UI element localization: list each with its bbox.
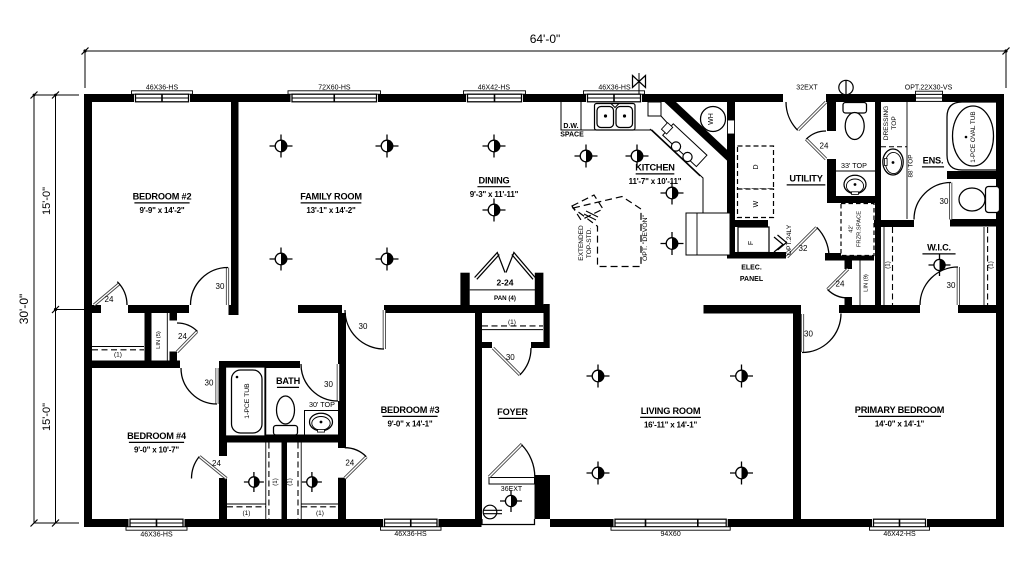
svg-text:TOP-STD.: TOP-STD. [586, 228, 593, 258]
svg-text:32EXT: 32EXT [796, 84, 818, 91]
svg-text:30: 30 [216, 282, 225, 291]
svg-text:88' TOP: 88' TOP [908, 154, 915, 177]
svg-text:64'-0": 64'-0" [530, 32, 561, 46]
svg-text:13'-1" x 14'-2": 13'-1" x 14'-2" [306, 206, 356, 215]
svg-text:9'-3" x 11'-11": 9'-3" x 11'-11" [470, 190, 519, 199]
svg-text:16'-11" x 14'-1": 16'-11" x 14'-1" [644, 421, 698, 430]
svg-text:BEDROOM #4: BEDROOM #4 [127, 431, 187, 441]
svg-text:36EXT: 36EXT [501, 486, 523, 493]
svg-text:OPT. "DEVON": OPT. "DEVON" [642, 214, 649, 261]
svg-text:94X60: 94X60 [660, 531, 680, 538]
svg-text:30: 30 [947, 281, 956, 290]
svg-text:24: 24 [178, 332, 187, 341]
svg-text:SPACE: SPACE [560, 132, 584, 139]
svg-text:UTILITY: UTILITY [789, 174, 822, 184]
svg-text:1-PCE TUB: 1-PCE TUB [244, 383, 251, 419]
svg-text:24: 24 [820, 142, 829, 151]
svg-text:KITCHEN: KITCHEN [635, 163, 675, 173]
svg-text:24: 24 [212, 459, 221, 468]
svg-text:ELEC.: ELEC. [741, 265, 762, 272]
svg-text:FOYER: FOYER [497, 407, 528, 417]
svg-text:(1): (1) [272, 478, 279, 486]
svg-text:46X42-HS: 46X42-HS [883, 531, 916, 538]
svg-text:BEDROOM #2: BEDROOM #2 [133, 192, 192, 202]
svg-text:BEDROOM #3: BEDROOM #3 [381, 405, 440, 415]
svg-text:46X36-HS: 46X36-HS [394, 531, 427, 538]
svg-text:(1): (1) [243, 510, 251, 517]
svg-text:F: F [748, 241, 755, 245]
svg-text:LIN (5): LIN (5) [156, 331, 162, 349]
svg-text:2-24: 2-24 [496, 278, 513, 288]
svg-text:LIN (9): LIN (9) [864, 274, 870, 292]
svg-text:D: D [753, 164, 760, 169]
svg-text:PAN (4): PAN (4) [494, 295, 516, 302]
svg-text:(1): (1) [508, 319, 516, 326]
svg-text:9'-9" x 14'-2": 9'-9" x 14'-2" [139, 206, 184, 215]
svg-text:30' TOP: 30' TOP [309, 400, 335, 409]
svg-text:30: 30 [205, 379, 214, 388]
svg-text:24: 24 [345, 459, 354, 468]
svg-text:OPT.22X30-VS: OPT.22X30-VS [905, 84, 953, 91]
svg-text:72X60-HS: 72X60-HS [318, 84, 351, 91]
svg-text:DRESSING: DRESSING [883, 106, 890, 140]
svg-text:(1): (1) [287, 478, 294, 486]
svg-text:OPT.24LY: OPT.24LY [786, 224, 793, 255]
svg-text:30: 30 [359, 322, 368, 331]
svg-text:46X36-HS: 46X36-HS [146, 84, 179, 91]
svg-text:30: 30 [804, 330, 813, 339]
svg-text:30: 30 [940, 197, 949, 206]
svg-text:46X36-HS: 46X36-HS [598, 84, 631, 91]
svg-text:1-PCE OVAL TUB: 1-PCE OVAL TUB [970, 111, 977, 162]
svg-text:11'-7" x 10'-11": 11'-7" x 10'-11" [629, 177, 682, 186]
svg-text:FRZR.SPACE: FRZR.SPACE [857, 211, 863, 247]
svg-text:30: 30 [506, 353, 515, 362]
svg-text:(1): (1) [316, 510, 324, 517]
svg-text:30'-0": 30'-0" [17, 294, 31, 325]
svg-text:TOP: TOP [891, 116, 898, 130]
svg-text:32: 32 [799, 244, 808, 253]
svg-text:42': 42' [849, 225, 855, 233]
svg-text:LIVING ROOM: LIVING ROOM [641, 406, 701, 416]
svg-text:BATH: BATH [276, 376, 301, 386]
svg-text:WH: WH [708, 113, 715, 125]
svg-text:24: 24 [105, 295, 114, 304]
svg-text:9'-0" x 14'-1": 9'-0" x 14'-1" [387, 420, 432, 429]
svg-text:PANEL: PANEL [740, 276, 764, 283]
svg-text:9'-0" x 10'-7": 9'-0" x 10'-7" [134, 446, 179, 455]
svg-text:46X36-HS: 46X36-HS [140, 532, 173, 539]
svg-text:33' TOP: 33' TOP [841, 161, 867, 170]
svg-text:EXTENDED: EXTENDED [578, 225, 585, 261]
svg-text:46X42-HS: 46X42-HS [478, 84, 511, 91]
svg-text:30: 30 [324, 380, 333, 389]
svg-text:24: 24 [836, 280, 845, 289]
svg-text:W.I.C.: W.I.C. [927, 243, 951, 253]
svg-text:(1): (1) [885, 261, 892, 269]
svg-text:15'-0": 15'-0" [41, 403, 53, 431]
svg-text:PRIMARY BEDROOM: PRIMARY BEDROOM [855, 405, 945, 415]
svg-text:(1): (1) [988, 261, 995, 269]
svg-text:FAMILY ROOM: FAMILY ROOM [300, 192, 362, 202]
svg-text:DINING: DINING [479, 175, 510, 185]
svg-text:14'-0" x 14'-1": 14'-0" x 14'-1" [875, 420, 925, 429]
svg-text:(1): (1) [114, 352, 122, 359]
svg-text:D.W.: D.W. [563, 123, 578, 130]
svg-text:15'-0": 15'-0" [41, 187, 53, 215]
svg-text:W: W [753, 200, 760, 207]
svg-text:ENS.: ENS. [923, 156, 944, 166]
